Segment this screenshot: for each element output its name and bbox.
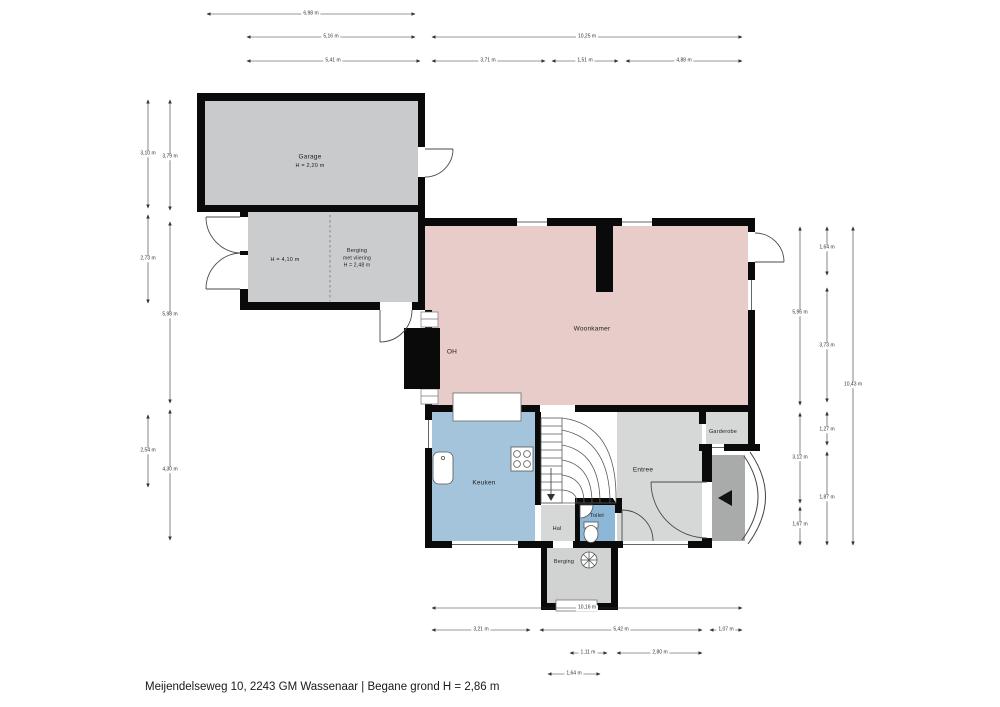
woonkamer-floor [425, 226, 748, 405]
dim-label-left-inner-2: 5,98 m [160, 312, 179, 318]
staircase [541, 418, 616, 503]
dim-label-bottom-seg3: 1,07 m [716, 627, 735, 633]
berging-small-floor [547, 548, 611, 603]
hal-floor [541, 505, 575, 541]
door-berging-west-lower [206, 253, 240, 289]
dim-label-left-outer-2: 2,73 m [138, 256, 157, 262]
door-berging-west-upper [206, 217, 240, 253]
room-label-berging-small: Berging [554, 559, 574, 565]
door-garage-east [425, 149, 453, 177]
window-keuken-south [452, 541, 518, 548]
room-label-toilet: Toilet [590, 513, 604, 519]
dim-label-right-1: 5,96 m [790, 310, 809, 316]
room-label-keuken: Keuken [472, 479, 495, 486]
dim-label-bottom-seg5: 2,80 m [650, 650, 669, 656]
dim-label-top-seg2: 3,71 m [478, 58, 497, 64]
dim-label-bottom-seg1: 3,21 m [471, 627, 490, 633]
dim-label-bottom-seg4: 1,11 m [579, 650, 598, 656]
window-keuken-west [425, 420, 432, 448]
dim-label-right-4: 3,12 m [790, 455, 809, 461]
door-woonkamer-east [755, 233, 784, 262]
fireplace-block [404, 328, 440, 389]
kitchen-sink-icon [433, 452, 453, 484]
room-label-fireplace-oh: OH [447, 348, 457, 355]
room-label-berging-height: H = 2,48 m [344, 263, 371, 269]
room-label-woonkamer: Woonkamer [574, 325, 611, 332]
dim-label-left-outer-3: 2,54 m [138, 448, 157, 454]
floorplan-drawing [0, 0, 1000, 707]
dim-label-right-2: 1,64 m [817, 245, 836, 251]
dim-label-bottom-total: 10,16 m [576, 605, 598, 611]
room-label-berging: Berging [347, 248, 367, 254]
dim-label-right-3: 3,73 m [817, 343, 836, 349]
stove-icon [511, 447, 533, 471]
room-label-garage: Garage [299, 153, 322, 160]
room-floors [205, 101, 748, 603]
kitchen-counter [453, 393, 521, 421]
dim-label-top-woonkamer: 10,25 m [576, 34, 598, 40]
window-woonkamer-north-1 [517, 218, 547, 226]
room-label-entree: Entree [633, 466, 653, 473]
dim-label-left-inner-3: 4,30 m [160, 467, 179, 473]
dim-label-left-outer-1: 3,10 m [138, 151, 157, 157]
window-entree-south [623, 541, 688, 548]
floorplan-page: 6,98 m 5,16 m 10,25 m 5,41 m 3,71 m 1,51… [0, 0, 1000, 707]
entree-floor [617, 412, 702, 541]
dim-label-top-seg1: 5,41 m [323, 58, 342, 64]
toilet-bowl-icon [584, 522, 598, 543]
room-label-hal: Hal [553, 526, 562, 532]
dim-label-right-7: 1,67 m [790, 522, 809, 528]
dim-label-top-seg4: 4,88 m [674, 58, 693, 64]
dim-label-top-garage: 6,98 m [301, 11, 320, 17]
dim-label-top-seg3: 1,51 m [575, 58, 594, 64]
boiler-icon [581, 552, 597, 568]
dim-label-right-6: 1,87 m [817, 495, 836, 501]
curved-entry-wall [742, 452, 766, 544]
dim-label-right-total: 10,43 m [842, 382, 864, 388]
dim-label-right-5: 1,27 m [817, 427, 836, 433]
window-woonkamer-north-2 [622, 218, 652, 226]
window-woonkamer-east [748, 280, 755, 310]
window-garderobe-south [712, 444, 724, 451]
dim-label-top-berging: 5,16 m [321, 34, 340, 40]
room-label-garderobe: Garderobe [709, 429, 737, 435]
plan-title: Meijendelseweg 10, 2243 GM Wassenaar | B… [145, 681, 499, 693]
room-label-berging-sub: met vliering [343, 256, 371, 262]
dim-label-bottom-seg6: 1,64 m [564, 671, 583, 677]
room-label-vliering-height: H = 4,10 m [270, 257, 299, 263]
dim-label-bottom-seg2: 5,42 m [611, 627, 630, 633]
room-label-garage-height: H = 2,20 m [295, 163, 324, 169]
dim-label-left-inner-1: 3,79 m [160, 154, 179, 160]
